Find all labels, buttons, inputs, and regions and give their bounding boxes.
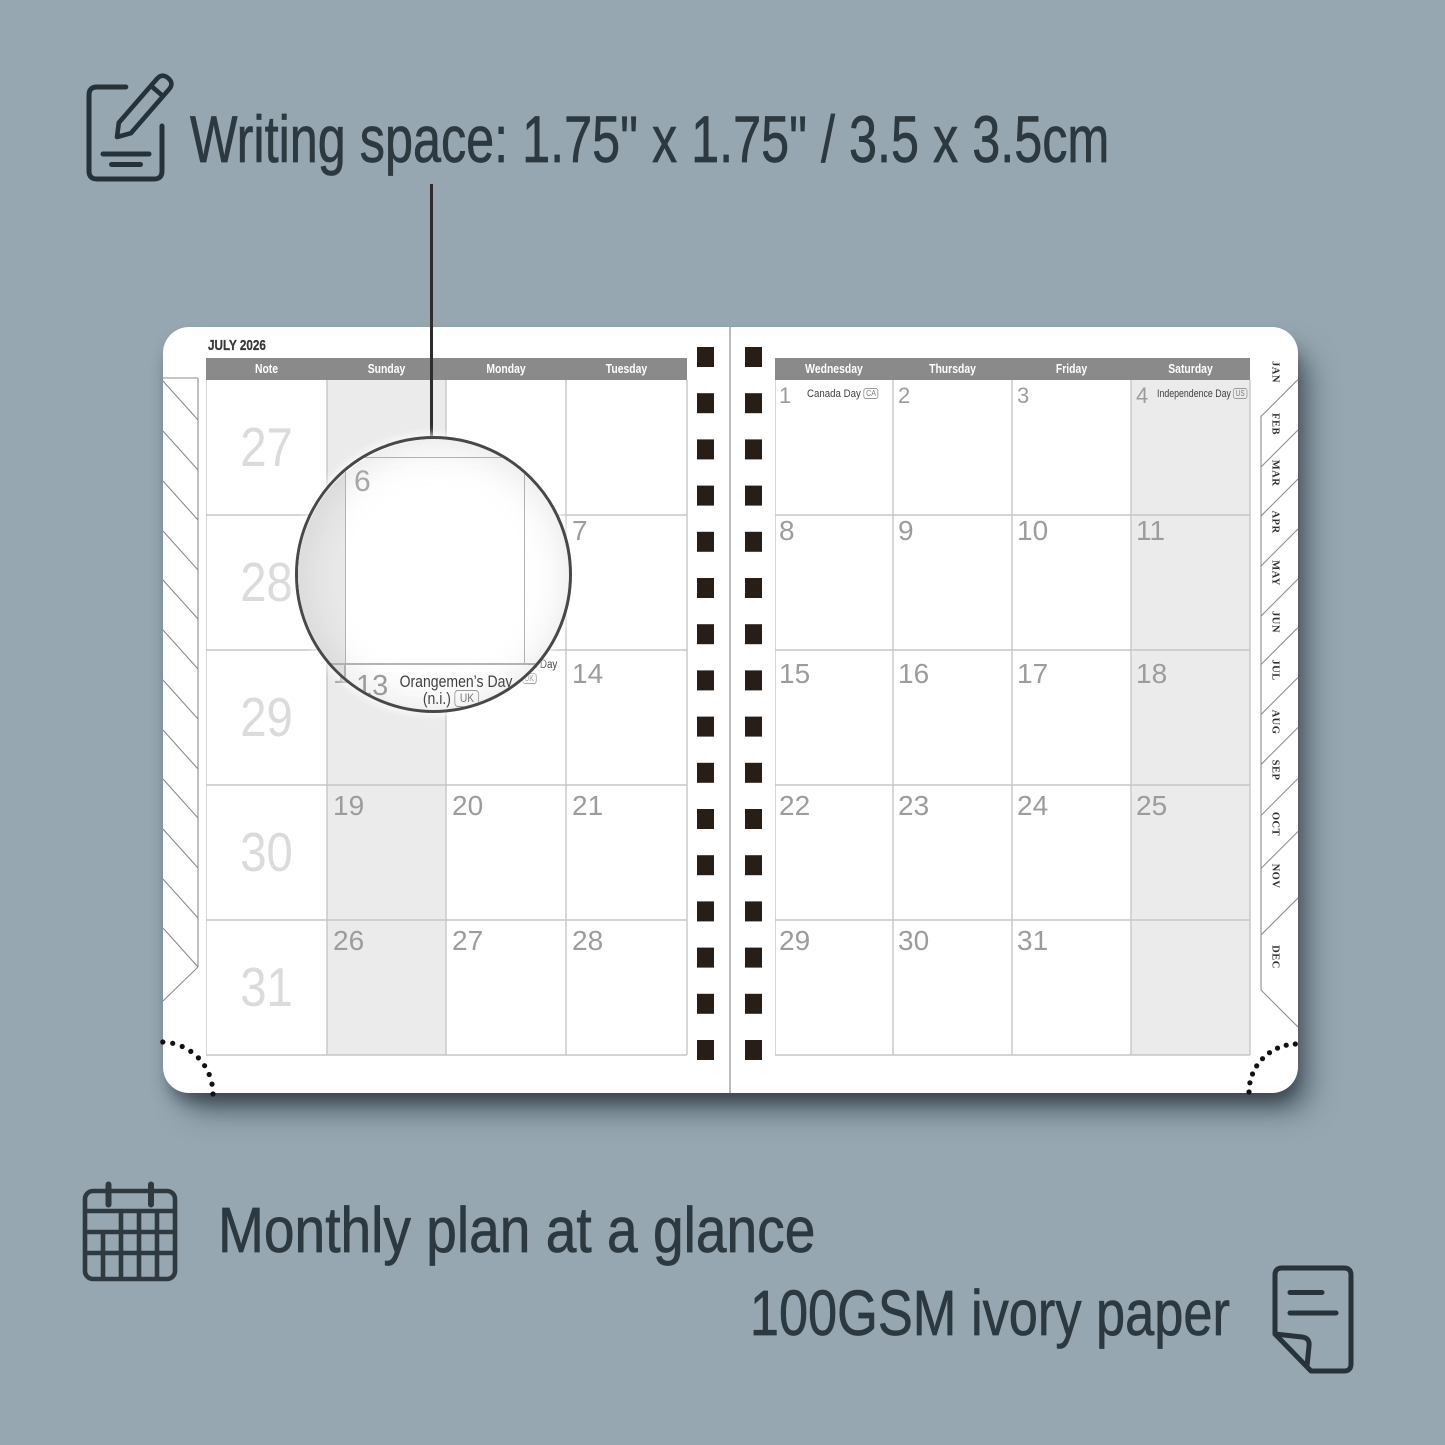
svg-text:MAY: MAY [1270,560,1281,586]
svg-text:JAN: JAN [1270,361,1281,383]
svg-text:FEB: FEB [1270,413,1281,435]
svg-text:DEC: DEC [1270,945,1281,969]
svg-text:JUL: JUL [1270,659,1281,680]
svg-text:SEP: SEP [1270,760,1281,781]
svg-text:OCT: OCT [1270,812,1281,836]
svg-text:NOV: NOV [1270,864,1281,889]
svg-text:MAR: MAR [1270,460,1281,487]
svg-text:APR: APR [1270,510,1281,533]
svg-text:JUN: JUN [1270,611,1281,633]
svg-text:AUG: AUG [1270,710,1281,735]
